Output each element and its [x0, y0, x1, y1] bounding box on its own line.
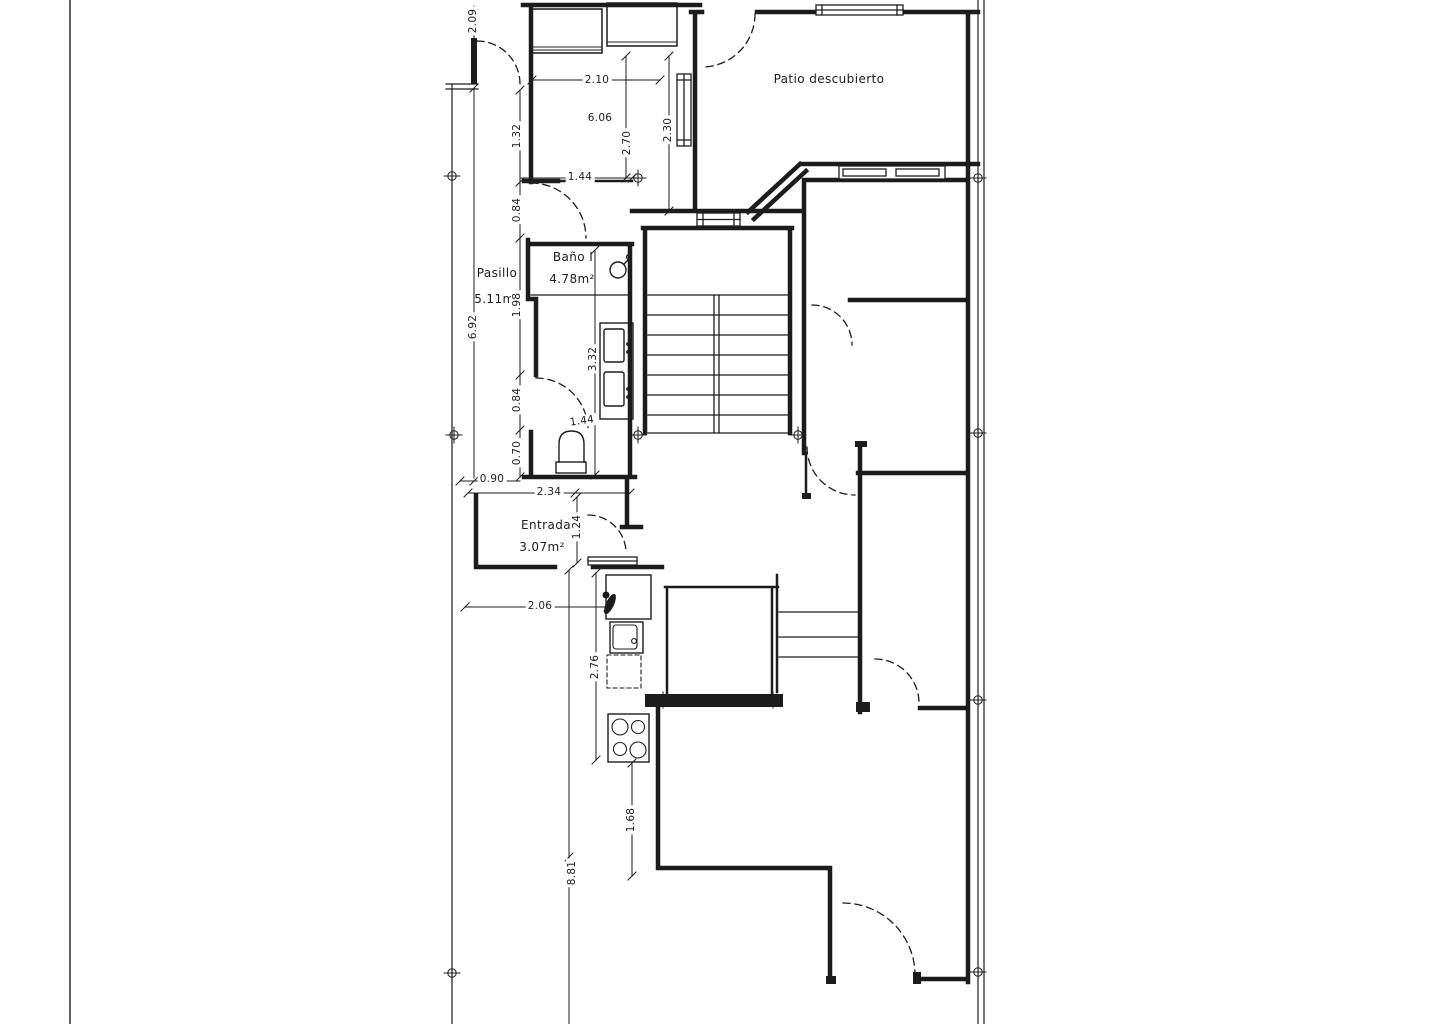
dim-0-90: 0.90 [478, 473, 507, 485]
dim-8-81: 8.81 [566, 859, 578, 888]
window-laundry-east [677, 74, 691, 146]
room-label-entrada: Entrada [521, 518, 571, 532]
dim-2-06: 2.06 [526, 600, 555, 612]
room-label-bano: Baño I [553, 250, 593, 264]
dim-6-92: 6.92 [467, 313, 479, 342]
dim-0-84-upper: 0.84 [511, 196, 523, 225]
faucet-icon [602, 592, 619, 616]
dishwasher [607, 655, 641, 688]
dim-2-10: 2.10 [583, 74, 612, 86]
survey-markers [444, 168, 986, 981]
door-arc-bedroom2 [875, 659, 919, 703]
dim-2-34: 2.34 [535, 486, 564, 498]
entry-threshold [588, 557, 637, 565]
dim-2-76: 2.76 [589, 653, 601, 682]
room-area-entrada: 3.07m² [519, 540, 565, 554]
toilet [556, 431, 586, 473]
window-patio-bottom [839, 166, 945, 179]
laundry-fixtures [532, 3, 677, 53]
staircase-main [648, 295, 788, 433]
door-arc-bedroom1 [812, 305, 852, 345]
dim-1-98: 1.98 [511, 291, 523, 320]
dim-1-32: 1.32 [511, 122, 523, 151]
dim-1-44-top: 1.44 [566, 171, 595, 183]
dim-2-30: 2.30 [662, 116, 674, 145]
floorplan-canvas [0, 0, 1440, 1024]
dimension-lines [456, 6, 673, 1024]
dim-6-06: 6.06 [586, 112, 615, 124]
floorplan-page: Patio descubierto Baño I 4.78m² Pasillo … [0, 0, 1440, 1024]
property-boundary [446, 0, 984, 1024]
door-arc-entry [588, 515, 626, 553]
door-arc-hall-passage [807, 447, 855, 495]
door-arc-patio [702, 14, 755, 67]
dim-0-84-lower: 0.84 [511, 386, 523, 415]
door-arc-nw-gate [477, 41, 520, 84]
door-arc-pasillo [531, 183, 586, 238]
kitchen-fixtures [602, 575, 651, 762]
room-area-bano: 4.78m² [549, 272, 595, 286]
windows [588, 5, 945, 565]
staircase-secondary [779, 612, 858, 657]
room-label-pasillo: Pasillo [477, 266, 517, 280]
dim-1-68: 1.68 [625, 806, 637, 835]
stove [608, 714, 649, 762]
dim-3-32: 3.32 [587, 345, 599, 374]
dim-2-70: 2.70 [621, 129, 633, 158]
dim-1-24: 1.24 [571, 513, 583, 542]
door-arc-living-se [843, 903, 915, 975]
window-patio-top [816, 5, 903, 15]
room-label-patio: Patio descubierto [774, 72, 885, 86]
window-stair-hall [697, 213, 740, 226]
dim-2-09: 2.09 [467, 7, 479, 36]
dim-0-70: 0.70 [511, 439, 523, 468]
kitchen-sink [610, 622, 643, 653]
dimension-ticks [456, 52, 673, 880]
